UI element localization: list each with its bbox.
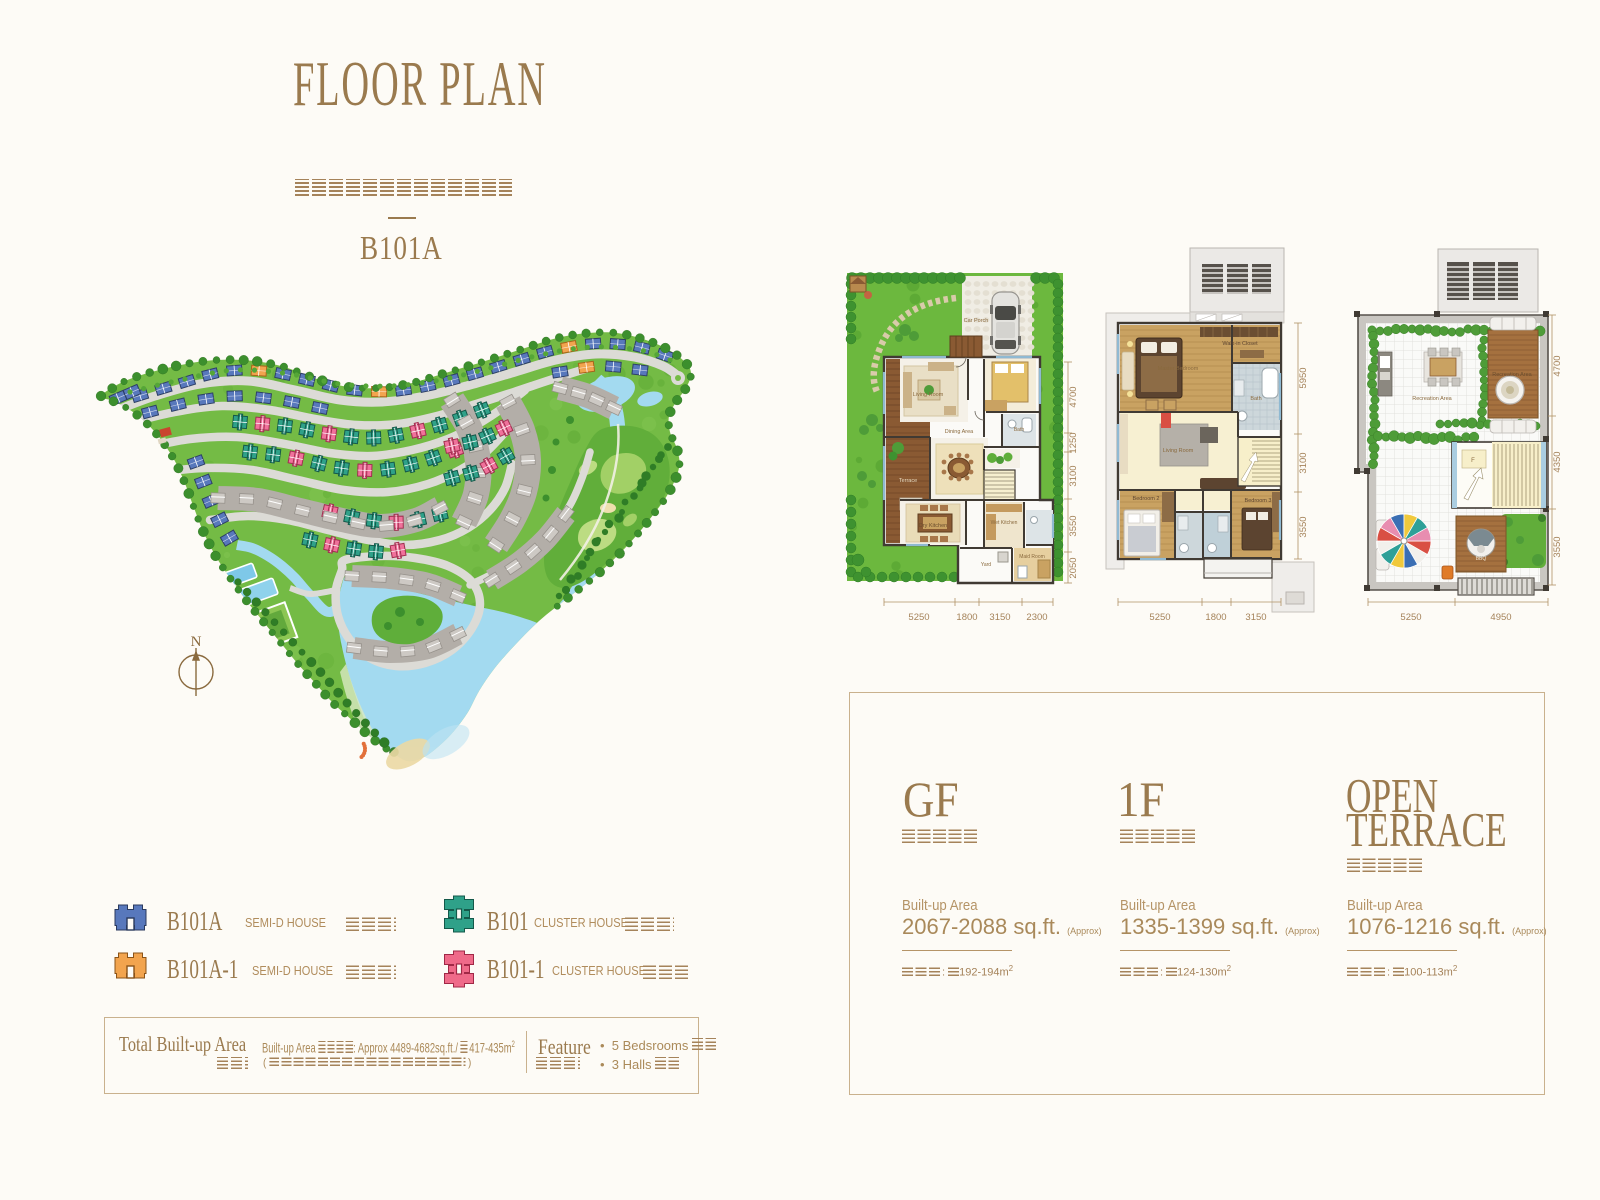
svg-text:1800: 1800 — [956, 612, 977, 623]
svg-text:Living Room: Living Room — [1163, 448, 1194, 454]
svg-text:5250: 5250 — [1149, 612, 1170, 623]
svg-text:1800: 1800 — [1205, 612, 1226, 623]
svg-text:3150: 3150 — [1245, 612, 1266, 623]
svg-text:Yard: Yard — [981, 562, 991, 568]
svg-text:F: F — [1471, 458, 1475, 464]
svg-text:Walk-in Closet: Walk-in Closet — [1222, 341, 1258, 347]
svg-text:3550: 3550 — [1068, 515, 1079, 536]
svg-text:3550: 3550 — [1552, 536, 1563, 557]
svg-text:Bath: Bath — [1250, 396, 1261, 402]
svg-text:Terrace: Terrace — [899, 478, 917, 484]
svg-text:2300: 2300 — [1026, 612, 1047, 623]
svg-text:Dry Kitchen: Dry Kitchen — [919, 523, 947, 529]
svg-text:5250: 5250 — [1400, 612, 1421, 623]
svg-text:5950: 5950 — [1298, 367, 1309, 388]
svg-text:Living Room: Living Room — [913, 392, 944, 398]
svg-text:Bath: Bath — [1014, 427, 1025, 433]
svg-text:4950: 4950 — [1490, 612, 1511, 623]
svg-text:1250: 1250 — [1068, 432, 1079, 453]
svg-text:Recreation Area: Recreation Area — [1412, 396, 1452, 402]
svg-text:4350: 4350 — [1552, 451, 1563, 472]
svg-text:N: N — [191, 634, 202, 650]
svg-text:Recreation Area: Recreation Area — [1492, 372, 1532, 378]
svg-text:5250: 5250 — [908, 612, 929, 623]
svg-text:Car Porch: Car Porch — [964, 318, 989, 324]
svg-text:Maid Room: Maid Room — [1019, 554, 1045, 560]
svg-text:3100: 3100 — [1068, 465, 1079, 486]
svg-text:Bedroom 3: Bedroom 3 — [1245, 498, 1272, 504]
svg-text:Wet Kitchen: Wet Kitchen — [991, 520, 1018, 526]
svg-text:4700: 4700 — [1068, 386, 1079, 407]
svg-text:Master Bedroom: Master Bedroom — [1158, 366, 1199, 372]
svg-text:Dining Area: Dining Area — [945, 429, 974, 435]
svg-text:3550: 3550 — [1298, 516, 1309, 537]
svg-text:4700: 4700 — [1552, 355, 1563, 376]
svg-text:BBQ: BBQ — [1476, 556, 1487, 562]
svg-text:3100: 3100 — [1298, 452, 1309, 473]
svg-text:2050: 2050 — [1068, 557, 1079, 578]
svg-text:Bedroom 2: Bedroom 2 — [1133, 496, 1160, 502]
svg-text:3150: 3150 — [989, 612, 1010, 623]
